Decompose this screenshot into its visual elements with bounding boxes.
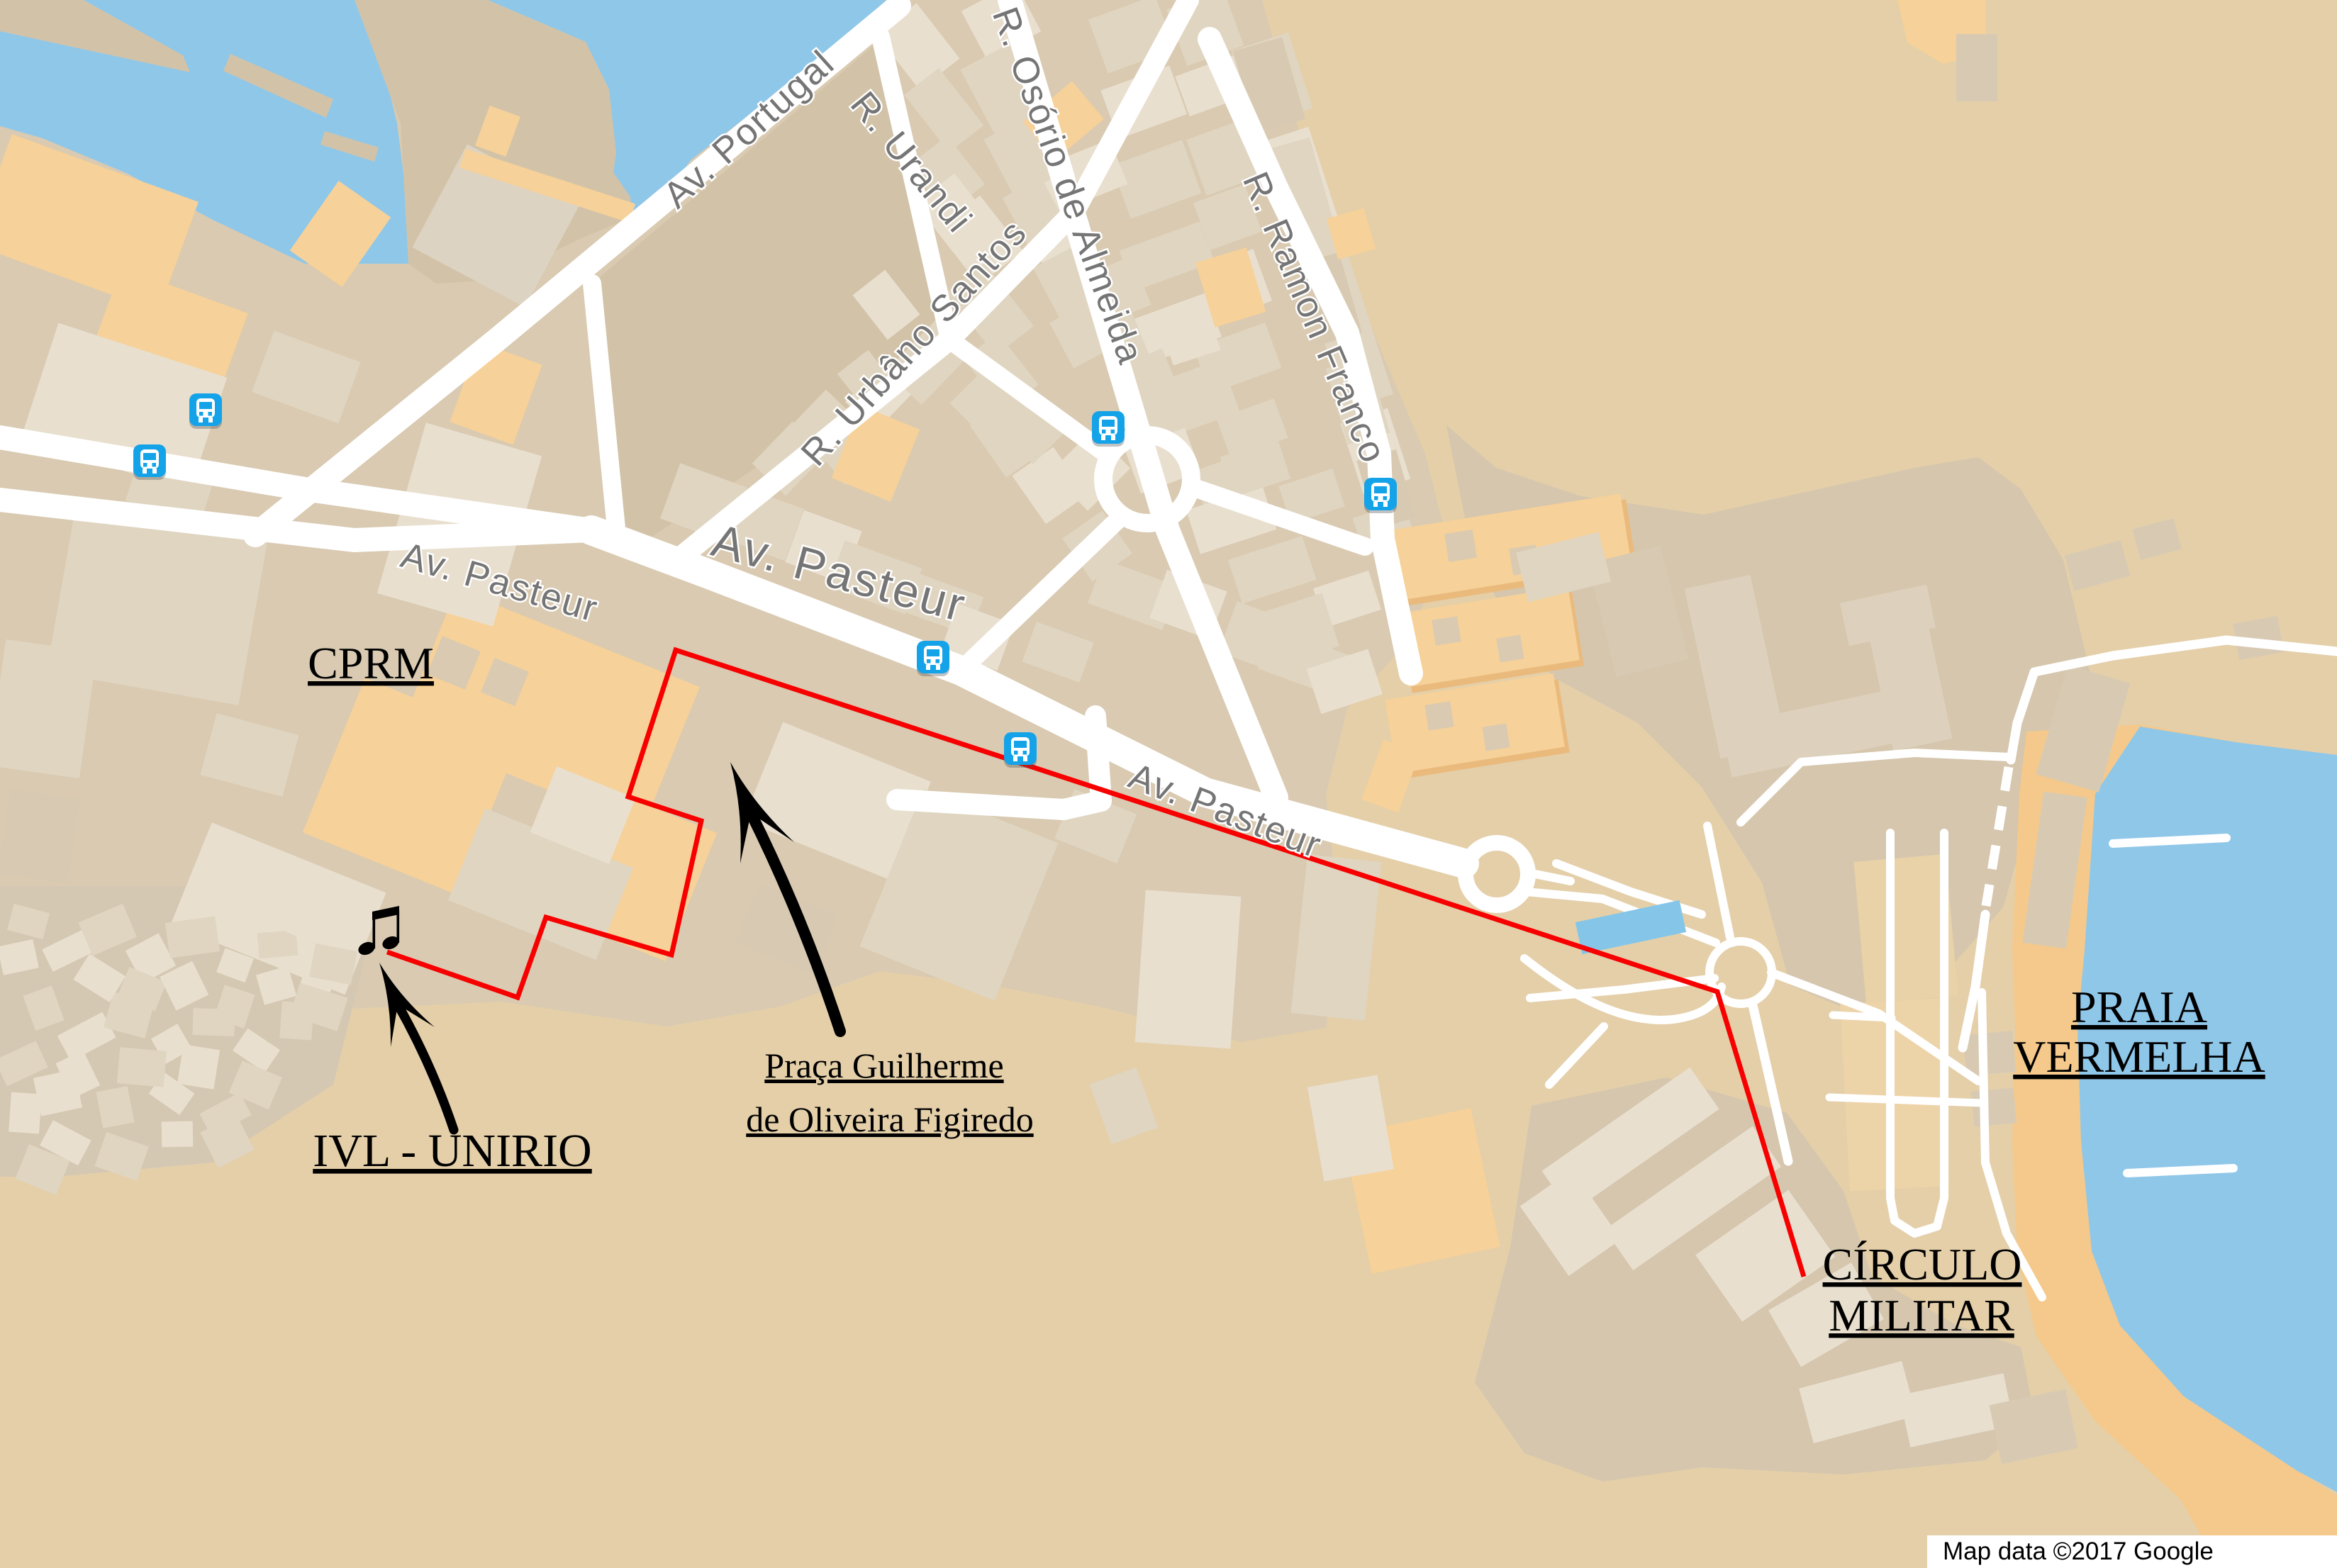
svg-text:PRAIA: PRAIA [2071,982,2207,1032]
svg-text:Map data ©2017 Google: Map data ©2017 Google [1943,1538,2214,1565]
svg-text:MILITAR: MILITAR [1829,1290,2014,1340]
svg-text:de Oliveira Figiredo: de Oliveira Figiredo [746,1099,1033,1139]
svg-text:VERMELHA: VERMELHA [2013,1031,2265,1082]
svg-text:Praça Guilherme: Praça Guilherme [764,1046,1003,1085]
svg-text:CÍRCULO: CÍRCULO [1823,1239,2022,1289]
svg-text:CPRM: CPRM [308,638,434,688]
svg-text:IVL - UNIRIO: IVL - UNIRIO [313,1125,591,1177]
